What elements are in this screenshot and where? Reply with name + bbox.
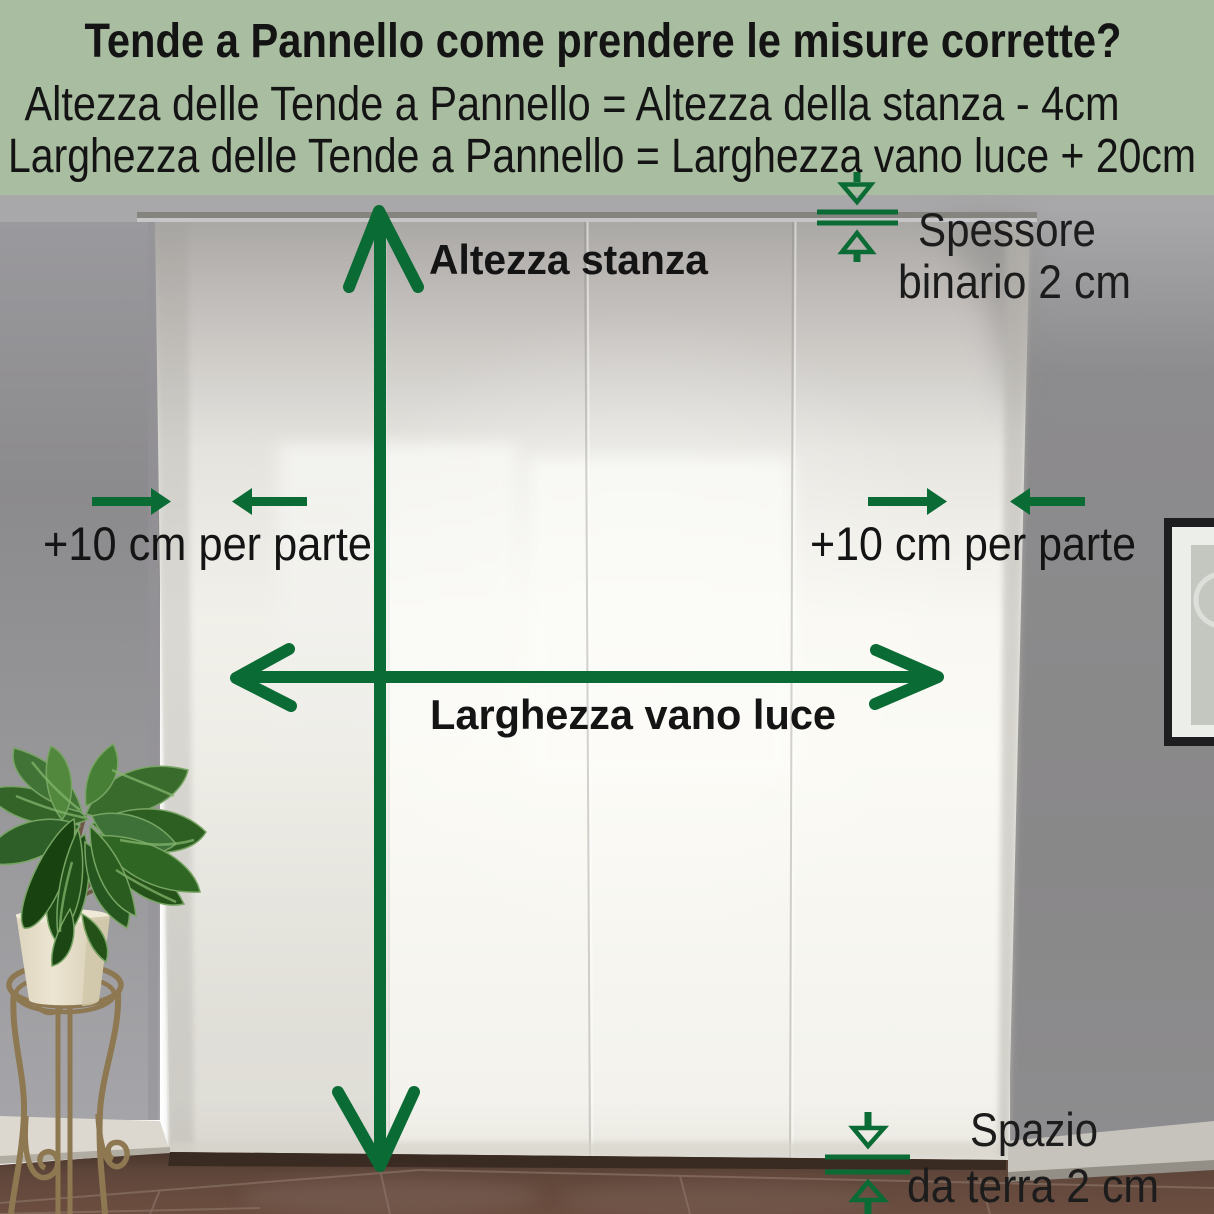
svg-text:Larghezza vano luce: Larghezza vano luce xyxy=(430,691,836,738)
svg-text:Spessore: Spessore xyxy=(918,203,1096,256)
svg-text:Altezza stanza: Altezza stanza xyxy=(429,236,709,283)
svg-text:binario 2 cm: binario 2 cm xyxy=(898,255,1131,308)
svg-text:Tende a Pannello come prendere: Tende a Pannello come prendere le misure… xyxy=(85,15,1122,68)
svg-text:da terra 2 cm: da terra 2 cm xyxy=(907,1159,1159,1212)
svg-text:Spazio: Spazio xyxy=(970,1103,1098,1156)
svg-text:Altezza delle Tende a Pannello: Altezza delle Tende a Pannello = Altezza… xyxy=(25,78,1120,131)
svg-text:+10 cm per parte: +10 cm per parte xyxy=(810,517,1136,570)
svg-text:Larghezza delle Tende a Pannel: Larghezza delle Tende a Pannello = Largh… xyxy=(8,130,1196,183)
svg-text:+10 cm per parte: +10 cm per parte xyxy=(43,517,372,570)
